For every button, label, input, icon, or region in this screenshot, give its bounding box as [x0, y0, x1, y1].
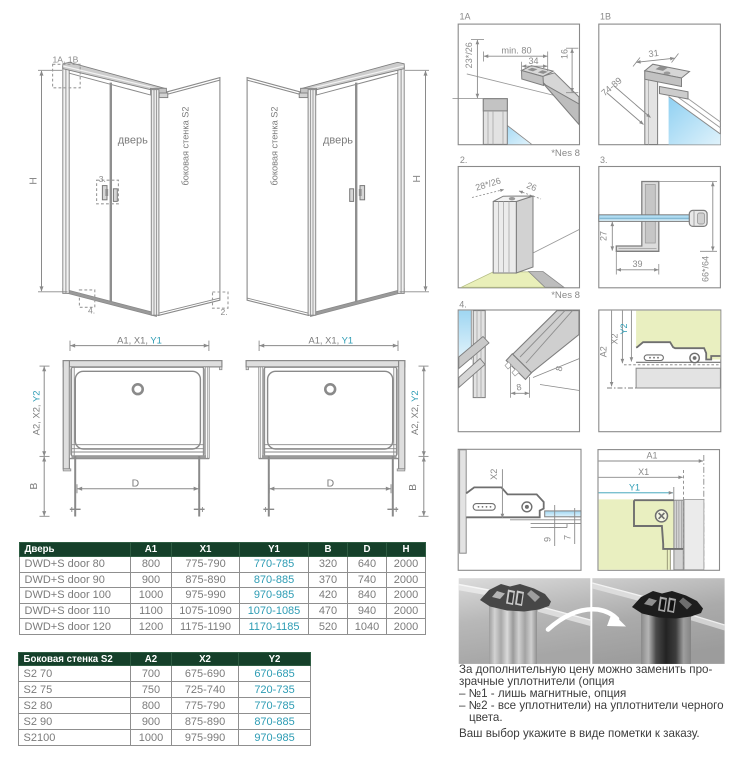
svg-text:*Nes 8: *Nes 8 [551, 290, 580, 301]
svg-text:7: 7 [562, 535, 572, 540]
svg-text:B: B [408, 484, 419, 491]
svg-text:X2: X2 [610, 333, 620, 344]
svg-text:A2: A2 [598, 346, 608, 357]
svg-text:8: 8 [516, 382, 523, 393]
svg-text:26: 26 [525, 180, 538, 193]
svg-text:*Nes 8: *Nes 8 [551, 148, 580, 159]
svg-text:боковая стенка S2: боковая стенка S2 [270, 106, 280, 185]
svg-text:4.: 4. [459, 299, 467, 309]
svg-text:74-89: 74-89 [599, 75, 623, 98]
svg-text:16: 16 [559, 49, 569, 59]
svg-text:2.: 2. [221, 307, 228, 317]
svg-text:A1: A1 [646, 451, 657, 461]
svg-text:66*/64: 66*/64 [700, 256, 710, 282]
svg-text:B: B [29, 483, 40, 490]
svg-text:3.: 3. [99, 174, 106, 184]
svg-text:2.: 2. [460, 155, 468, 165]
svg-text:39: 39 [632, 259, 642, 269]
svg-text:D: D [327, 478, 335, 489]
svg-text:8: 8 [554, 365, 565, 372]
svg-text:дверь: дверь [323, 134, 353, 146]
svg-text:9: 9 [542, 537, 552, 542]
svg-text:дверь: дверь [118, 134, 148, 146]
svg-text:1A: 1A [460, 12, 471, 22]
svg-text:Y1: Y1 [629, 482, 640, 492]
svg-text:A1, X1, Y1: A1, X1, Y1 [308, 335, 353, 346]
svg-text:Y2: Y2 [619, 323, 629, 334]
svg-text:1A, 1B: 1A, 1B [53, 55, 79, 65]
svg-text:H: H [411, 175, 423, 183]
svg-text:A2, X2, Y2: A2, X2, Y2 [30, 391, 41, 436]
svg-text:A1, X1, Y1: A1, X1, Y1 [117, 335, 162, 346]
svg-text:A2, X2, Y2: A2, X2, Y2 [409, 390, 420, 435]
svg-text:4.: 4. [88, 306, 95, 316]
svg-text:D: D [132, 478, 140, 489]
svg-text:H: H [28, 177, 40, 185]
svg-text:31: 31 [648, 48, 659, 59]
svg-text:X1: X1 [638, 467, 649, 477]
svg-text:34: 34 [528, 56, 538, 66]
svg-text:3.: 3. [600, 155, 608, 165]
svg-text:боковая стенка S2: боковая стенка S2 [181, 106, 191, 185]
svg-text:28*/26: 28*/26 [474, 176, 502, 193]
svg-text:23*/26: 23*/26 [464, 42, 474, 68]
svg-text:X2: X2 [489, 469, 499, 480]
svg-text:1B: 1B [600, 12, 611, 22]
svg-text:27: 27 [599, 231, 609, 241]
svg-text:min. 80: min. 80 [501, 46, 531, 56]
